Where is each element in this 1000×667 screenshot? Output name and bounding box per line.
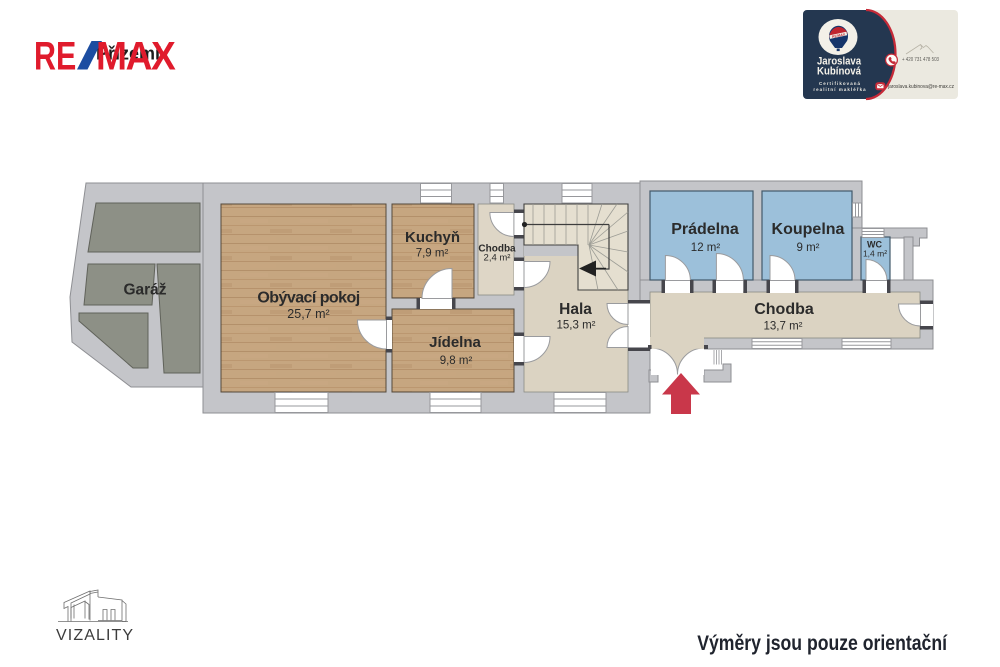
svg-text:MAX: MAX bbox=[96, 34, 176, 79]
svg-text:25,7 m²: 25,7 m² bbox=[287, 307, 329, 321]
svg-text:9 m²: 9 m² bbox=[797, 242, 820, 254]
svg-text:realitní makléřka: realitní makléřka bbox=[813, 87, 866, 92]
svg-text:RE: RE bbox=[34, 33, 76, 78]
svg-text:Výměry jsou pouze orientační: Výměry jsou pouze orientační bbox=[697, 631, 947, 655]
svg-text:15,3 m²: 15,3 m² bbox=[557, 320, 596, 332]
svg-text:Obývací pokoj: Obývací pokoj bbox=[257, 290, 359, 307]
svg-text:7,9 m²: 7,9 m² bbox=[416, 248, 449, 260]
svg-text:Certifikovaná: Certifikovaná bbox=[819, 81, 861, 86]
svg-text:13,7 m²: 13,7 m² bbox=[764, 321, 803, 333]
svg-text:Jídelna: Jídelna bbox=[429, 334, 481, 351]
svg-text:Prádelna: Prádelna bbox=[671, 221, 739, 238]
svg-text:2,4 m²: 2,4 m² bbox=[484, 253, 511, 264]
svg-text:jaroslava.kubinova@re-max.cz: jaroslava.kubinova@re-max.cz bbox=[887, 84, 954, 90]
svg-text:Kuchyň: Kuchyň bbox=[405, 229, 460, 246]
svg-text:Garáž: Garáž bbox=[123, 282, 166, 299]
svg-text:+ 420 731 478 503: + 420 731 478 503 bbox=[902, 57, 939, 63]
svg-text:Chodba: Chodba bbox=[754, 301, 814, 318]
svg-text:Koupelna: Koupelna bbox=[772, 221, 845, 238]
svg-text:Kubínová: Kubínová bbox=[817, 66, 862, 78]
svg-text:VIZALITY: VIZALITY bbox=[56, 627, 134, 644]
svg-text:1,4 m²: 1,4 m² bbox=[863, 249, 887, 259]
svg-text:9,8 m²: 9,8 m² bbox=[440, 355, 473, 367]
svg-text:12 m²: 12 m² bbox=[691, 242, 721, 254]
svg-text:Hala: Hala bbox=[559, 301, 592, 318]
